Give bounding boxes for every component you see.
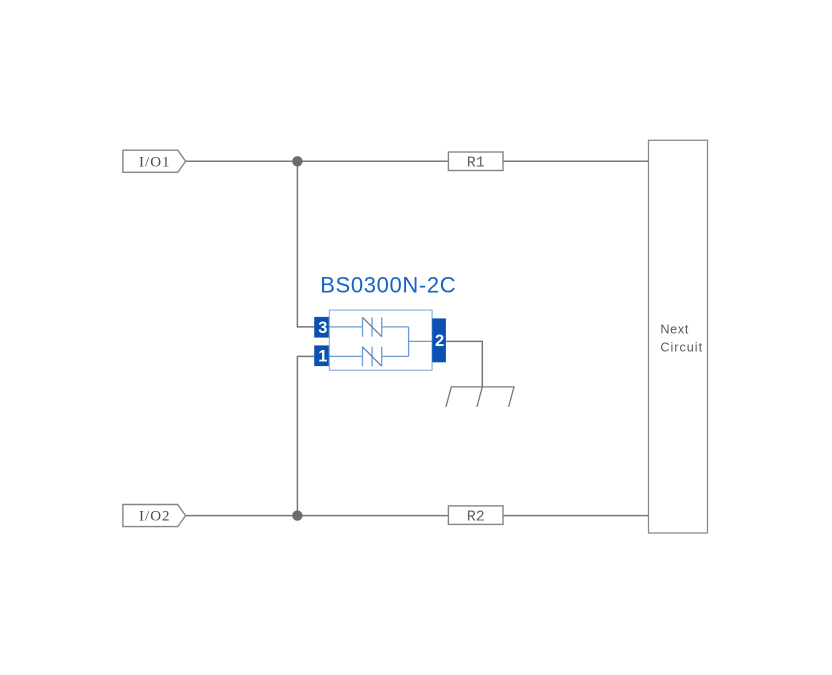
svg-text:I/O2: I/O2 [139, 509, 171, 525]
svg-text:I/O1: I/O1 [139, 154, 171, 170]
svg-text:R2: R2 [467, 508, 485, 525]
svg-text:BS0300N-2C: BS0300N-2C [320, 273, 456, 298]
svg-text:3: 3 [318, 319, 327, 337]
svg-text:R1: R1 [467, 154, 485, 171]
svg-text:Circuit: Circuit [660, 341, 703, 355]
svg-text:Next: Next [660, 323, 689, 337]
svg-text:1: 1 [318, 348, 327, 366]
svg-text:2: 2 [435, 332, 444, 350]
